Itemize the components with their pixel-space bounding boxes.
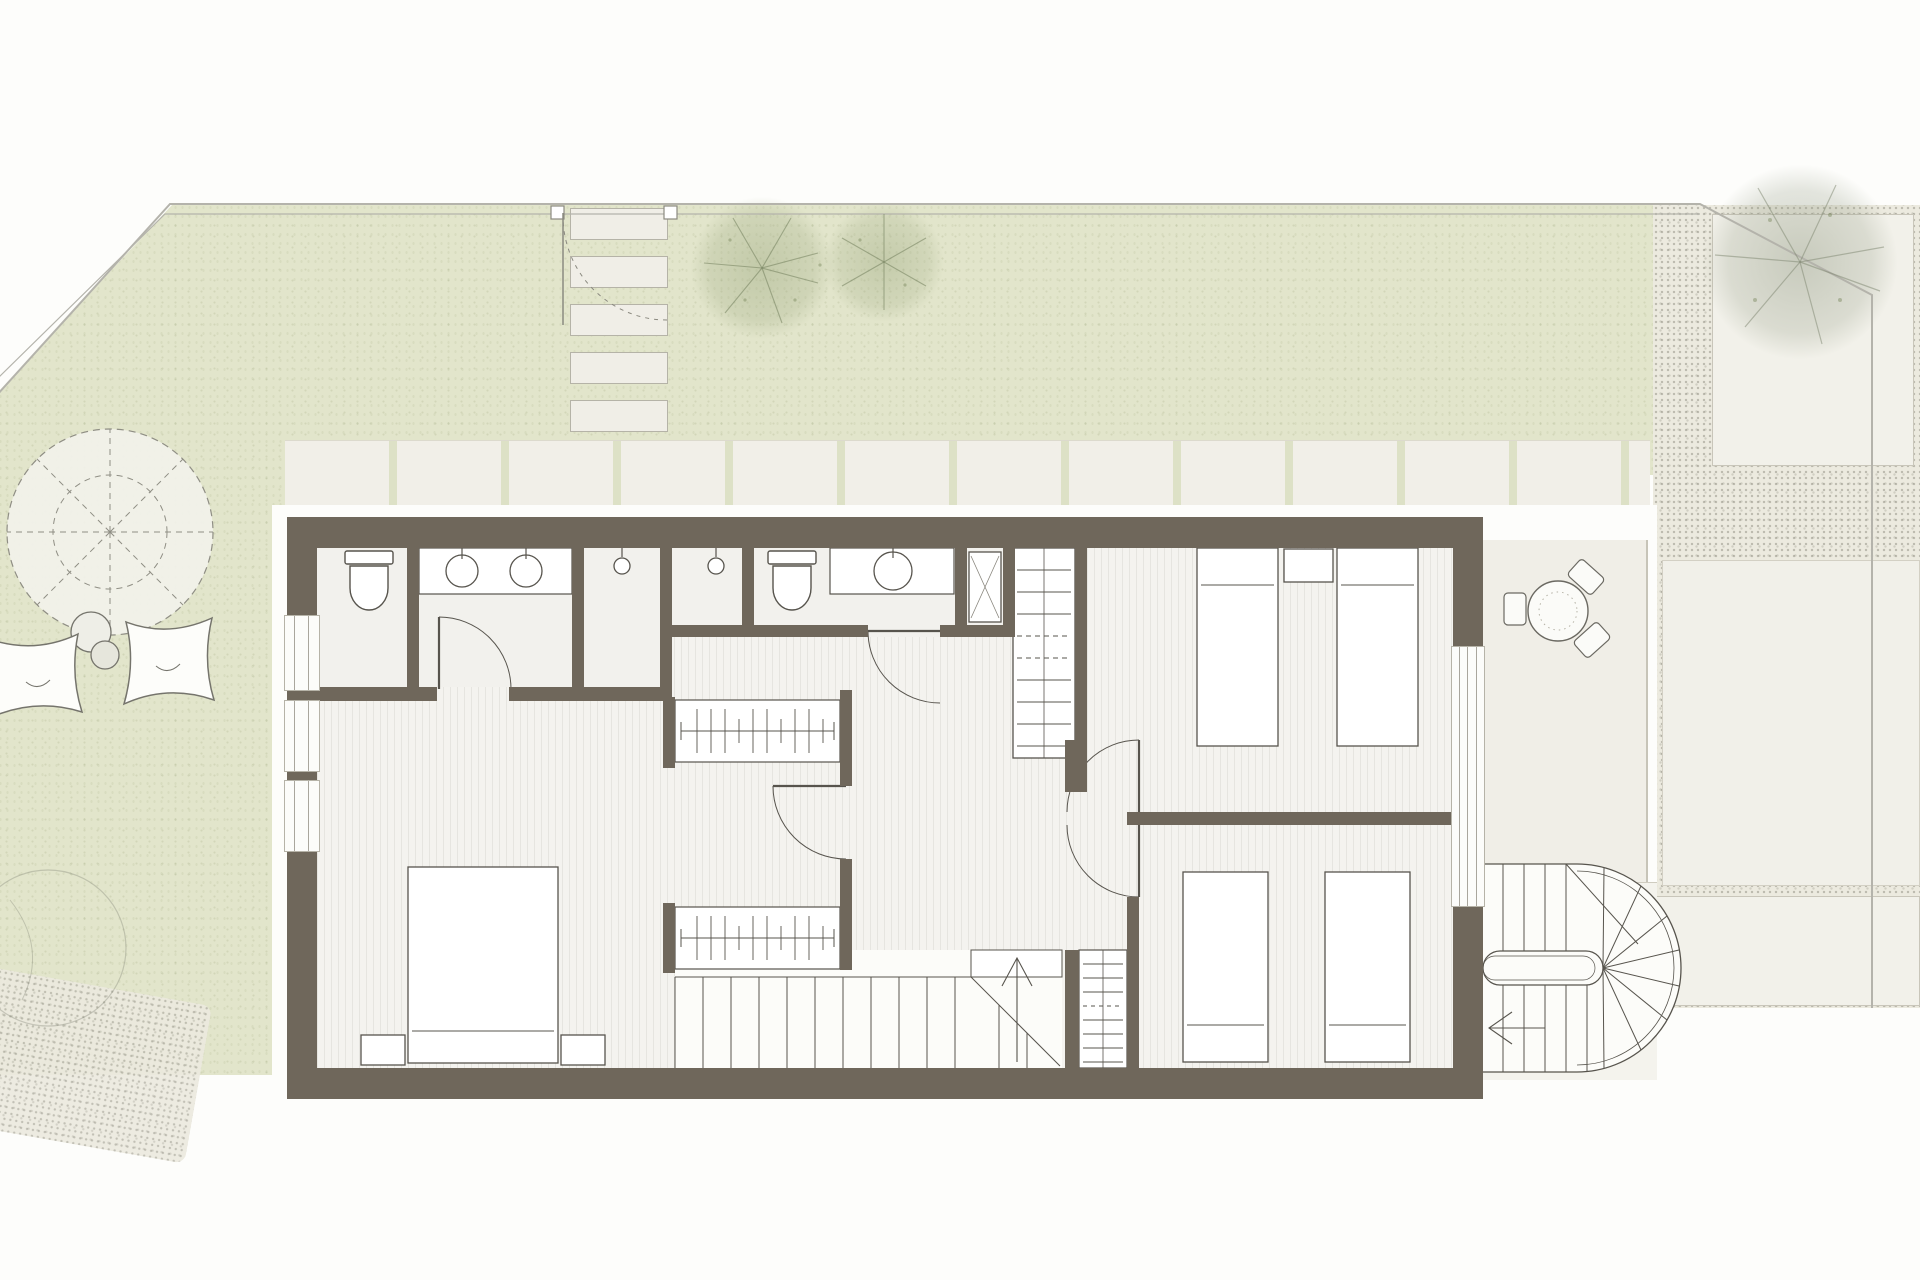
spiral-staircase bbox=[1483, 864, 1681, 1072]
wall-stair bbox=[1065, 950, 1079, 1068]
wall-corridor bbox=[1065, 740, 1077, 792]
wall-partition bbox=[955, 548, 967, 625]
double-vanity bbox=[419, 548, 572, 594]
wall-partition bbox=[1003, 548, 1015, 625]
wall-bathroom bbox=[940, 625, 1015, 637]
wall-bedroom-divider bbox=[1127, 812, 1453, 825]
wall-bottom bbox=[287, 1068, 1483, 1099]
window-left bbox=[284, 780, 320, 852]
floor-plan-canvas bbox=[0, 0, 1920, 1280]
toilet-icon bbox=[768, 551, 816, 610]
twin-beds-top bbox=[1197, 548, 1418, 746]
wall-partition bbox=[660, 548, 672, 701]
wall-wardrobe-stub bbox=[663, 903, 675, 973]
wall-wardrobe-stub bbox=[663, 697, 675, 768]
wall-ensuite bbox=[509, 687, 672, 701]
shower-tray bbox=[969, 552, 1001, 622]
wardrobe-bottom bbox=[675, 907, 840, 969]
watermark bbox=[795, 588, 1007, 594]
wall-corridor bbox=[1127, 897, 1139, 1068]
terrace-table-set bbox=[1504, 558, 1611, 659]
faint-tree-sketch bbox=[0, 870, 126, 1026]
parasol bbox=[7, 429, 213, 635]
wall-partition bbox=[572, 548, 584, 687]
garden-gate bbox=[551, 206, 677, 325]
wall-top bbox=[287, 517, 1483, 548]
sliding-door-right bbox=[1451, 646, 1485, 907]
wall-wardrobe bbox=[840, 859, 852, 970]
wall-wardrobe bbox=[840, 690, 852, 786]
utility-closet bbox=[1079, 950, 1127, 1068]
wardrobe-top bbox=[675, 700, 840, 762]
tree-branches bbox=[704, 185, 1884, 344]
toilet-icon bbox=[345, 551, 393, 610]
wall-partition bbox=[407, 548, 419, 701]
twin-beds-bottom bbox=[1183, 872, 1410, 1062]
master-bed bbox=[361, 867, 605, 1065]
window-left bbox=[284, 615, 320, 691]
wall-right-lower bbox=[1453, 905, 1483, 1099]
wall-bathroom bbox=[672, 625, 868, 637]
window-left bbox=[284, 700, 320, 772]
linen-closet bbox=[1013, 548, 1075, 758]
wall-right-upper bbox=[1453, 517, 1483, 648]
wall-partition bbox=[742, 548, 754, 625]
